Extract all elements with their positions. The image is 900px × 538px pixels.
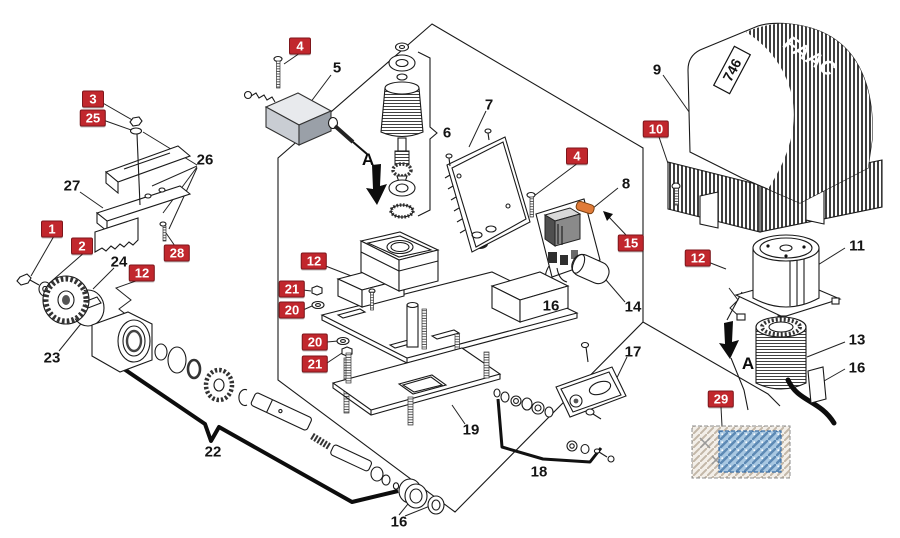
part-ref-red-12: 12 <box>129 265 155 282</box>
part-ref-6: 6 <box>443 125 451 142</box>
part-ref-red-10: 10 <box>643 121 669 138</box>
part-ref-16: 16 <box>849 360 866 377</box>
part-ref-17: 17 <box>625 344 642 361</box>
part-ref-24: 24 <box>111 254 128 271</box>
part-ref-26: 26 <box>197 152 214 169</box>
part-ref-red-4: 4 <box>566 148 588 165</box>
part-ref-11: 11 <box>849 238 865 255</box>
part-ref-red-12: 12 <box>685 250 711 267</box>
section-marker-a: A <box>742 354 754 374</box>
section-marker-a: A <box>362 150 374 170</box>
part-ref-red-21: 21 <box>302 356 328 373</box>
exploded-parts-diagram: 746 FAAC <box>0 0 900 538</box>
part-ref-red-25: 25 <box>80 110 106 127</box>
part-ref-red-20: 20 <box>302 334 328 351</box>
part-ref-red-29: 29 <box>708 391 734 408</box>
part-ref-red-28: 28 <box>164 245 190 262</box>
part-ref-14: 14 <box>625 299 642 316</box>
part-ref-13: 13 <box>849 332 866 349</box>
labels-layer: 4325122812122120202141510122952627242367… <box>0 0 900 538</box>
part-ref-red-4: 4 <box>289 38 311 55</box>
part-ref-5: 5 <box>333 60 341 77</box>
part-ref-22: 22 <box>205 444 222 461</box>
part-ref-16: 16 <box>391 514 408 531</box>
part-ref-red-20: 20 <box>279 302 305 319</box>
part-ref-23: 23 <box>44 350 61 367</box>
part-ref-red-15: 15 <box>618 235 644 252</box>
part-ref-16: 16 <box>543 298 560 315</box>
part-ref-red-12: 12 <box>301 253 327 270</box>
part-ref-9: 9 <box>653 62 661 79</box>
part-ref-8: 8 <box>622 176 630 193</box>
part-ref-red-3: 3 <box>82 91 104 108</box>
part-ref-red-1: 1 <box>41 221 63 238</box>
part-ref-7: 7 <box>485 97 493 114</box>
part-ref-red-21: 21 <box>279 281 305 298</box>
part-ref-18: 18 <box>531 464 548 481</box>
part-ref-red-2: 2 <box>71 238 93 255</box>
part-ref-27: 27 <box>64 178 81 195</box>
part-ref-19: 19 <box>463 422 480 439</box>
